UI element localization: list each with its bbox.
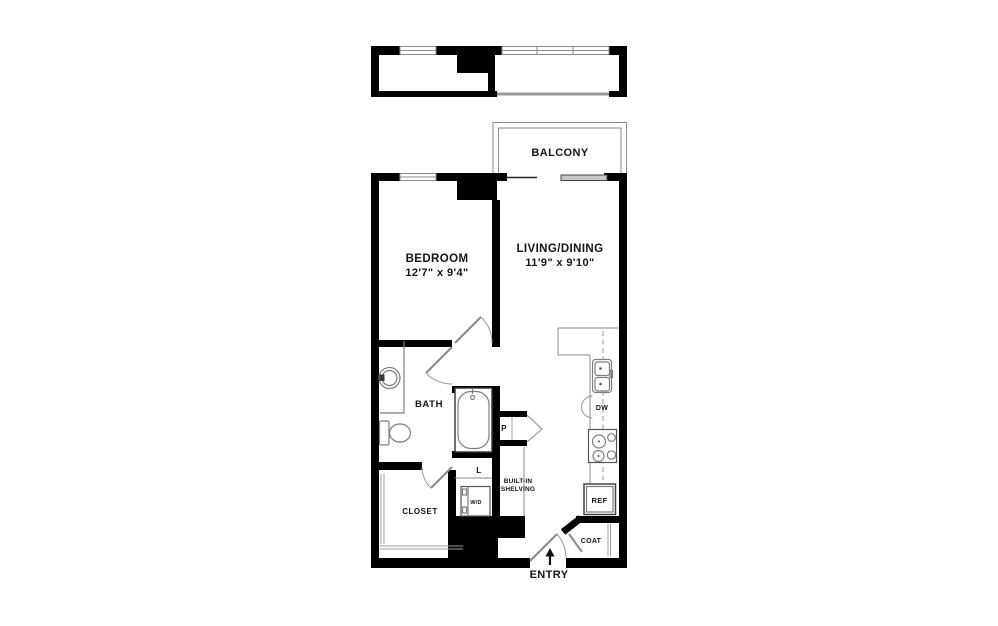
balcony-label: BALCONY (531, 147, 588, 159)
refrigerator-label: REF (592, 496, 608, 505)
bath-label: BATH (415, 399, 443, 410)
refrigerator: REF (584, 484, 616, 515)
built-in-shelving-label-line2: SHELVING (501, 486, 535, 493)
toilet (380, 421, 411, 445)
washer-dryer-label: W/D (470, 500, 481, 506)
entry-arrow-icon (546, 548, 555, 565)
living-dining-dimensions: 11'9" x 9'10" (525, 257, 594, 269)
closet-door (422, 467, 452, 488)
living-dining-label: LIVING/DINING (517, 243, 604, 255)
kitchen-sink (593, 360, 613, 393)
range-stove (589, 430, 617, 463)
adjacent-unit-above (371, 46, 627, 97)
floorplan-canvas: BALCONY (0, 0, 998, 626)
dishwasher-label: DW (596, 405, 608, 412)
bedroom-label: BEDROOM (406, 253, 469, 265)
window-upper-left (400, 47, 436, 55)
window-upper-right (502, 47, 609, 55)
bath-door (426, 347, 452, 384)
bedroom-door (455, 317, 492, 343)
balcony: BALCONY (493, 123, 627, 177)
pantry-label: P (501, 424, 507, 433)
entry-label: ENTRY (530, 569, 569, 581)
entry-door (530, 534, 566, 561)
bedroom-window (400, 174, 436, 181)
balcony-sliding-door (505, 175, 607, 181)
closet-label: CLOSET (402, 507, 437, 516)
pantry-door (527, 415, 542, 442)
coat-closet: COAT (569, 523, 619, 558)
linen-label: L (476, 466, 481, 475)
built-in-shelving-label-line1: BUILT-IN (504, 478, 533, 485)
coat-closet-label: COAT (581, 538, 602, 545)
bath-sink (379, 368, 400, 389)
bedroom-dimensions: 12'7" x 9'4" (405, 267, 468, 279)
bathtub (455, 388, 492, 452)
dishwasher: DW (582, 396, 609, 418)
floorplan-drawing: BALCONY (0, 0, 998, 626)
